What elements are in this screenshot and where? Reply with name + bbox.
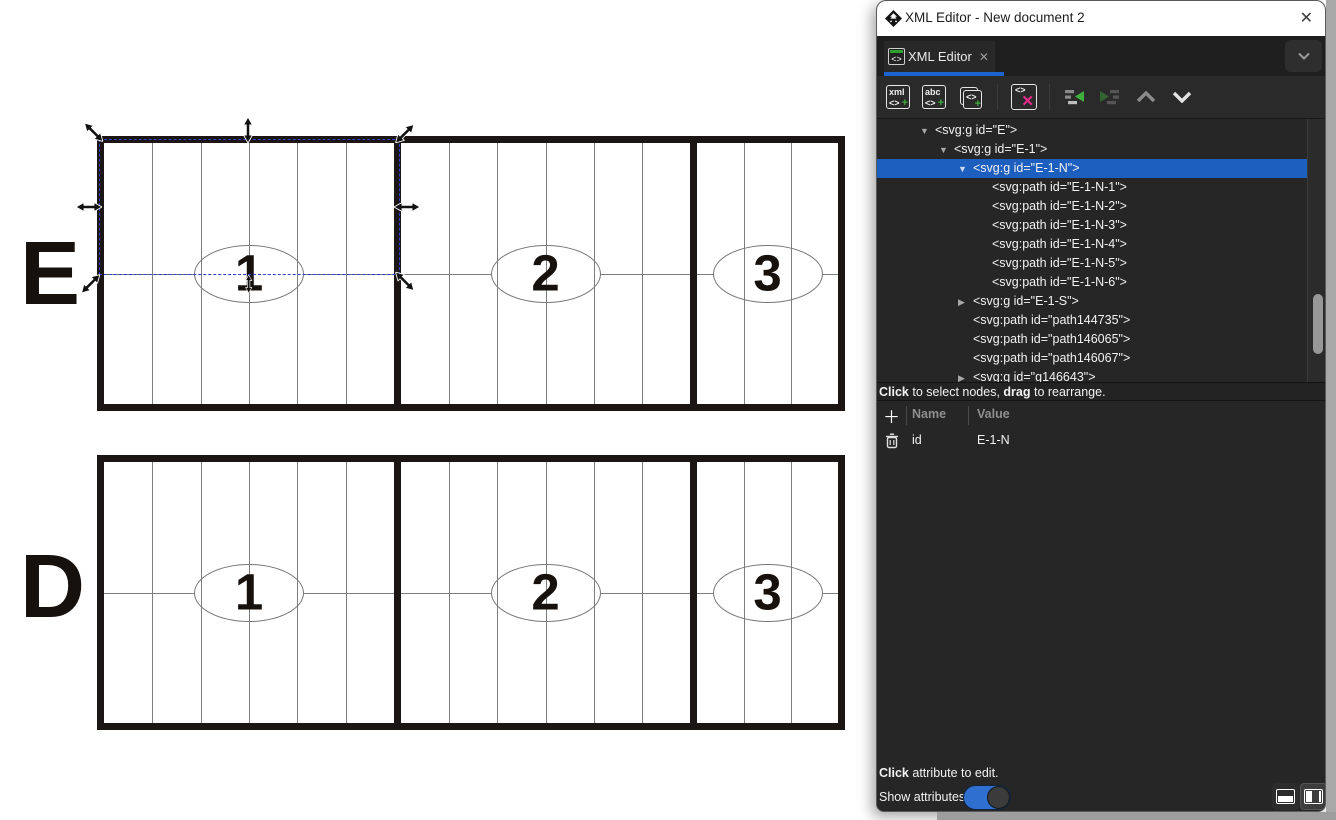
move-node-down-button[interactable] — [1167, 82, 1197, 112]
ellipse-number: 2 — [531, 562, 559, 621]
indent-icon — [1098, 87, 1122, 107]
add-attribute-button[interactable]: ＋ — [883, 403, 900, 428]
background-bottom-strip — [937, 812, 1336, 820]
close-window-icon[interactable]: ✕ — [1300, 8, 1313, 28]
xml-editor-dialog: XML Editor - New document 2 ✕ <> XML Edi… — [876, 0, 1326, 812]
tab-overflow-button[interactable] — [1285, 40, 1322, 72]
tree-row[interactable]: <svg:path id="E-1-N-1"> — [877, 178, 1307, 197]
canvas-text-D[interactable]: D — [20, 542, 85, 632]
tree-row[interactable]: ▶<svg:g id="g146643"> — [877, 368, 1307, 382]
tree-node-label: <svg:path id="path146065"> — [973, 332, 1130, 346]
expander-open-icon[interactable]: ▼ — [939, 141, 954, 160]
layout-horizontal-icon — [1276, 789, 1295, 804]
unindent-icon — [1062, 87, 1086, 107]
show-attributes-toggle[interactable] — [963, 785, 1011, 810]
ellipse-number: 3 — [753, 562, 781, 621]
unindent-node-button[interactable] — [1059, 82, 1089, 112]
attribute-row[interactable]: idE-1-N — [877, 429, 1325, 454]
column-header-value: Value — [977, 407, 1010, 421]
tree-row[interactable]: <svg:path id="path146065"> — [877, 330, 1307, 349]
xml-node-icon: <> — [888, 48, 905, 65]
tree-node-label: <svg:g id="g146643"> — [973, 370, 1096, 382]
tree-row[interactable]: <svg:path id="E-1-N-5"> — [877, 254, 1307, 273]
background-scrollbar-strip — [1326, 0, 1336, 820]
tree-node-label: <svg:g id="E-1-N"> — [973, 161, 1080, 175]
tree-row[interactable]: ▶<svg:g id="E-1-S"> — [877, 292, 1307, 311]
tree-node-label: <svg:path id="E-1-N-2"> — [992, 199, 1127, 213]
tree-row[interactable]: ▼<svg:g id="E-1"> — [877, 140, 1307, 159]
tree-node-label: <svg:path id="path144735"> — [973, 313, 1130, 327]
show-attributes-label: Show attributes — [879, 790, 965, 804]
expander-open-icon[interactable]: ▼ — [958, 160, 973, 179]
expander-closed-icon[interactable]: ▶ — [958, 369, 973, 382]
ellipse-number: 3 — [753, 243, 781, 302]
layout-vertical-panel-button[interactable] — [1300, 783, 1326, 810]
attribute-table-header: ＋ Name Value — [877, 402, 1325, 429]
section-E-2[interactable]: 2 — [401, 143, 690, 404]
tree-node-label: <svg:path id="E-1-N-1"> — [992, 180, 1127, 194]
scale-handle-s[interactable] — [242, 275, 255, 293]
scale-handle-e[interactable] — [394, 199, 420, 217]
xml-node-tree[interactable]: ▼<svg:g id="E">▼<svg:g id="E-1">▼<svg:g … — [877, 119, 1325, 382]
tree-node-label: <svg:path id="E-1-N-3"> — [992, 218, 1127, 232]
tree-row[interactable]: <svg:path id="E-1-N-2"> — [877, 197, 1307, 216]
layout-horizontal-panel-button[interactable] — [1272, 783, 1299, 810]
chevron-down-icon — [1298, 52, 1310, 60]
grid-object-D[interactable]: 1 2 3 — [97, 455, 845, 730]
attribute-name[interactable]: id — [912, 433, 922, 447]
ellipse-number: 1 — [235, 562, 263, 621]
expander-closed-icon[interactable]: ▶ — [958, 293, 973, 312]
canvas-text-E[interactable]: E — [20, 229, 80, 319]
tree-node-label: <svg:g id="E-1-S"> — [973, 294, 1079, 308]
tree-row[interactable]: <svg:path id="path144735"> — [877, 311, 1307, 330]
attribute-value[interactable]: E-1-N — [977, 433, 1010, 447]
chevron-down-icon — [1172, 91, 1192, 103]
tree-row[interactable]: <svg:path id="E-1-N-4"> — [877, 235, 1307, 254]
section-D-3[interactable]: 3 — [697, 462, 838, 723]
dialog-title: XML Editor - New document 2 — [905, 10, 1085, 25]
xml-toolbar: xml<>+ abc<>+ <>+ <>✕ — [877, 76, 1325, 119]
new-element-node-button[interactable]: xml<>+ — [883, 82, 913, 112]
new-text-node-button[interactable]: abc<>+ — [919, 82, 949, 112]
attribute-hint-text: Click attribute to edit. — [879, 766, 999, 780]
chevron-up-icon — [1136, 91, 1156, 103]
tree-row[interactable]: <svg:path id="E-1-N-6"> — [877, 273, 1307, 292]
scale-handle-n[interactable] — [238, 117, 256, 143]
tab-strip: <> XML Editor ✕ — [877, 36, 1325, 76]
tree-hint-text: Click to select nodes, drag to rearrange… — [877, 382, 1325, 401]
column-header-name: Name — [912, 407, 946, 421]
tree-node-label: <svg:g id="E"> — [935, 123, 1017, 137]
tree-node-label: <svg:path id="E-1-N-4"> — [992, 237, 1127, 251]
tree-row[interactable]: ▼<svg:g id="E-1-N"> — [877, 159, 1307, 178]
tree-scrollbar[interactable] — [1307, 119, 1326, 382]
delete-attribute-icon[interactable] — [885, 433, 899, 449]
tree-row[interactable]: <svg:path id="path146067"> — [877, 349, 1307, 368]
tree-node-label: <svg:path id="E-1-N-5"> — [992, 256, 1127, 270]
scrollbar-thumb[interactable] — [1313, 294, 1323, 354]
tree-node-label: <svg:path id="path146067"> — [973, 351, 1130, 365]
delete-node-button[interactable]: <>✕ — [1009, 82, 1039, 112]
tree-node-label: <svg:g id="E-1"> — [954, 142, 1047, 156]
section-E-3[interactable]: 3 — [697, 143, 838, 404]
tab-close-icon[interactable]: ✕ — [979, 50, 989, 64]
move-node-up-button[interactable] — [1131, 82, 1161, 112]
indent-node-button[interactable] — [1095, 82, 1125, 112]
scale-handle-w[interactable] — [76, 199, 102, 217]
ellipse-number: 2 — [531, 243, 559, 302]
tree-node-label: <svg:path id="E-1-N-6"> — [992, 275, 1127, 289]
duplicate-node-button[interactable]: <>+ — [955, 82, 985, 112]
tree-row[interactable]: ▼<svg:g id="E"> — [877, 121, 1307, 140]
section-D-2[interactable]: 2 — [401, 462, 690, 723]
section-D-1[interactable]: 1 — [104, 462, 394, 723]
selection-dashed-rect — [99, 139, 400, 275]
inkscape-logo-icon — [885, 10, 902, 27]
tab-xml-editor[interactable]: <> XML Editor ✕ — [884, 41, 995, 72]
expander-open-icon[interactable]: ▼ — [920, 122, 935, 141]
dialog-titlebar[interactable]: XML Editor - New document 2 ✕ — [877, 1, 1325, 36]
tree-row[interactable]: <svg:path id="E-1-N-3"> — [877, 216, 1307, 235]
layout-vertical-icon — [1304, 789, 1323, 804]
